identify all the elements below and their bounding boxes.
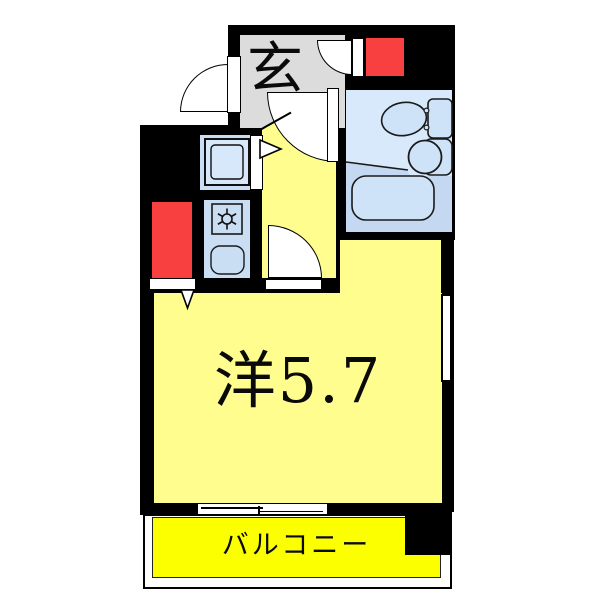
triangle-arrow-down: [181, 290, 194, 308]
entrance-label: 玄: [240, 42, 310, 98]
toilet-bowl-icon: [379, 99, 429, 139]
triangle-arrow-right: [260, 140, 281, 158]
washing-machine-inner: [211, 145, 243, 179]
washbasin-icon: [409, 141, 442, 174]
bathtub-icon: [352, 176, 434, 220]
toilet-hinge-top: [424, 108, 429, 113]
kitchen-sink-icon: [211, 246, 244, 274]
main-room-label: 洋5.7: [154, 350, 442, 412]
floor-plan: 玄 洋5.7 バルコニー: [0, 0, 600, 600]
toilet-hinge-bottom: [424, 125, 429, 130]
balcony-label: バルコニー: [152, 532, 441, 559]
entrance-step-line: [258, 113, 291, 132]
toilet-tank-icon: [428, 99, 452, 138]
